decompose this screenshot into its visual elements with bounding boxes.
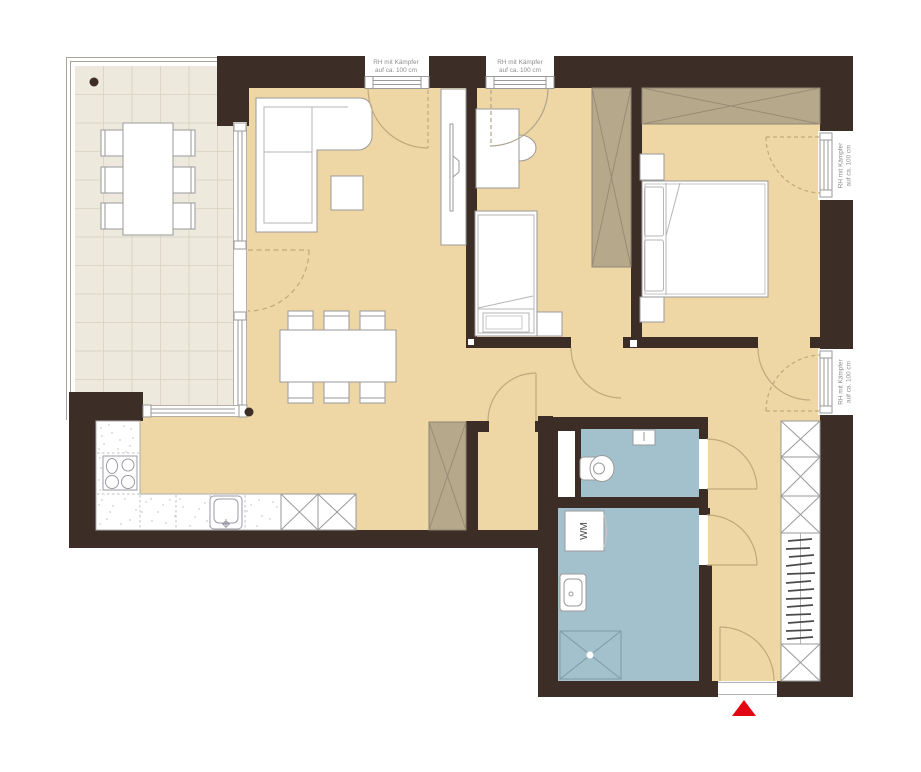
svg-text:auf ca. 100 cm: auf ca. 100 cm [499, 67, 541, 74]
svg-text:RH mit Kämpfer: RH mit Kämpfer [838, 142, 845, 188]
svg-text:RH mit Kämpfer: RH mit Kämpfer [838, 358, 845, 404]
svg-text:auf ca. 100 cm: auf ca. 100 cm [846, 361, 853, 403]
svg-text:auf ca. 100 cm: auf ca. 100 cm [846, 145, 853, 187]
svg-text:WM: WM [579, 522, 590, 540]
svg-text:RH mit Kämpfer: RH mit Kämpfer [373, 59, 419, 66]
svg-text:auf ca. 100 cm: auf ca. 100 cm [375, 67, 417, 74]
svg-text:RH mit Kämpfer: RH mit Kämpfer [497, 59, 543, 66]
